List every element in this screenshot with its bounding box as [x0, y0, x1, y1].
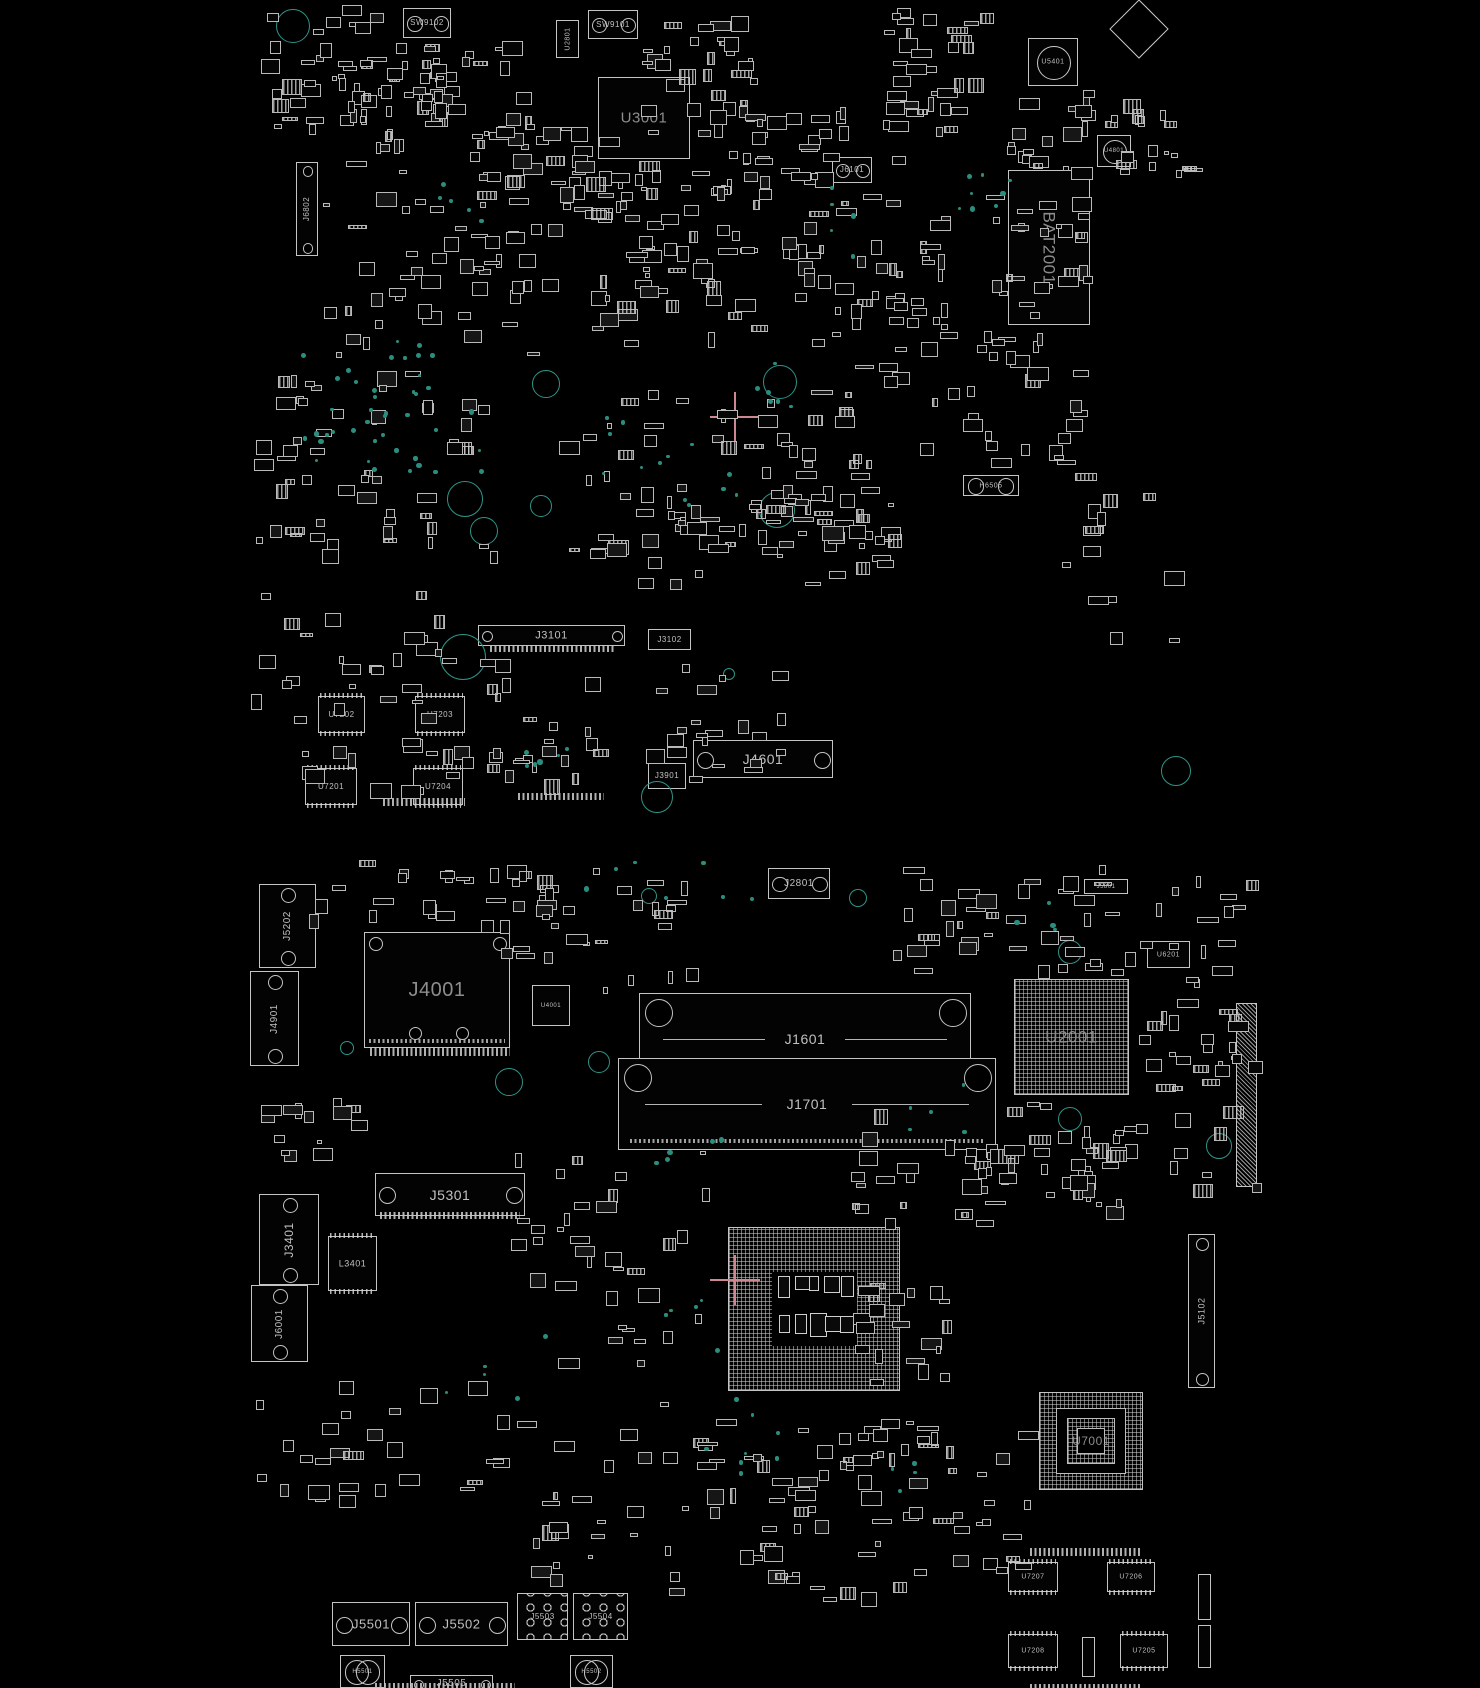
smd-component [638, 1452, 652, 1464]
smd-component [399, 170, 407, 175]
smd-component [1071, 167, 1093, 180]
smd-component [664, 243, 677, 256]
component-pinrow-8 [1030, 1684, 1140, 1688]
smd-component [270, 525, 282, 538]
smd-component [1172, 1086, 1184, 1091]
smd-component [1193, 1184, 1213, 1198]
smd-component [1007, 146, 1016, 155]
smd-component [486, 1459, 503, 1464]
smd-component [519, 871, 528, 882]
smd-component [982, 1519, 992, 1526]
smd-component [570, 1236, 590, 1245]
via-dot [962, 1083, 965, 1086]
smd-component [1170, 1161, 1179, 1175]
smd-component [717, 225, 730, 236]
smd-component [1201, 945, 1206, 959]
smd-component [954, 78, 964, 93]
smd-component [772, 671, 789, 681]
smd-component [516, 953, 535, 959]
smd-component [332, 409, 344, 419]
smd-component [607, 543, 627, 558]
smd-component [575, 1246, 595, 1256]
smd-component [464, 330, 481, 343]
smd-component [776, 749, 785, 756]
smd-component [872, 1519, 892, 1524]
via-dot [913, 1471, 916, 1474]
smd-component [320, 43, 332, 58]
smd-component [599, 137, 620, 147]
smd-component [455, 226, 467, 231]
smd-component [517, 1421, 537, 1428]
smd-component [865, 531, 873, 539]
smd-component [812, 339, 825, 347]
smd-component [857, 256, 866, 268]
smd-component [1164, 151, 1169, 155]
smd-component [310, 533, 325, 542]
smd-component [272, 89, 282, 99]
smd-component [877, 1451, 884, 1458]
smd-component [989, 352, 998, 360]
pin-hole [939, 999, 967, 1027]
smd-component [500, 920, 510, 933]
socket-pad [779, 1315, 791, 1334]
smd-component [900, 1202, 907, 1209]
smd-component [270, 41, 281, 54]
smd-component [894, 302, 907, 310]
smd-component [533, 1237, 543, 1244]
smd-component [315, 899, 328, 914]
via-dot [515, 1396, 520, 1401]
smd-component [1248, 1061, 1263, 1074]
smd-component [795, 499, 809, 506]
smd-component [605, 1252, 621, 1267]
pin-hole [281, 888, 296, 903]
smd-component [629, 257, 645, 264]
smd-component [481, 920, 495, 932]
smd-component [819, 129, 832, 140]
smd-component [261, 593, 271, 599]
smd-component [744, 172, 758, 181]
smd-component [695, 570, 703, 578]
component-label: L3401 [339, 1259, 367, 1268]
smd-component [322, 549, 339, 564]
mounting-hole [530, 495, 552, 517]
smd-component [906, 1358, 925, 1363]
component-label: J5504 [588, 1613, 612, 1621]
smd-component [1078, 213, 1090, 220]
smd-component [415, 199, 426, 205]
pin-hole [814, 752, 831, 769]
smd-component [1143, 493, 1156, 501]
component-J5301: J5301 [375, 1173, 525, 1216]
pin-hole [612, 631, 623, 642]
smd-component [590, 549, 606, 559]
via-dot [413, 456, 417, 460]
smd-component [644, 435, 657, 447]
smd-component [533, 1538, 540, 1549]
smd-component [615, 1172, 627, 1181]
via-dot [438, 196, 442, 200]
smd-component [549, 1522, 568, 1532]
smd-component [630, 1533, 639, 1537]
smd-component [506, 113, 522, 126]
smd-component [1009, 946, 1028, 951]
smd-component [1176, 170, 1182, 178]
smd-component [682, 664, 691, 674]
component-J5202: J5202 [259, 884, 316, 968]
smd-component [1212, 966, 1233, 976]
smd-component [363, 337, 370, 350]
smd-component [1017, 209, 1034, 215]
smd-component [875, 1349, 883, 1364]
smd-component [1093, 1143, 1109, 1159]
smd-component [832, 332, 841, 338]
smd-component [324, 307, 337, 319]
smd-component [484, 261, 499, 266]
component-label: J6101 [840, 166, 864, 174]
component-J6001: J6001 [251, 1285, 308, 1362]
smd-component [648, 557, 662, 569]
smd-component [760, 176, 770, 189]
smd-component [871, 240, 882, 255]
smd-component [962, 1179, 981, 1194]
smd-component [693, 263, 713, 278]
via-dot [449, 199, 453, 203]
smd-component [1070, 400, 1082, 414]
via-dot [525, 764, 529, 768]
component-label: J5202 [283, 911, 293, 941]
smd-component [384, 517, 396, 526]
smd-component [283, 1105, 303, 1114]
smd-component [1116, 1199, 1122, 1208]
smd-component [468, 1381, 488, 1396]
smd-component [375, 1484, 386, 1498]
smd-component [342, 664, 361, 674]
smd-component [277, 456, 296, 461]
smd-component [371, 666, 384, 675]
smd-component [554, 1441, 575, 1452]
smd-component [964, 21, 979, 26]
smd-component [357, 492, 376, 504]
component-label: J3401 [283, 1222, 295, 1257]
smd-component [638, 578, 654, 589]
smd-component [855, 1345, 870, 1354]
component-label: J5502 [443, 1618, 481, 1631]
smd-component [802, 448, 816, 461]
smd-component [944, 126, 958, 134]
smd-component [608, 1337, 623, 1344]
smd-component [677, 1230, 689, 1244]
smd-component [402, 61, 408, 70]
smd-component [1082, 1137, 1091, 1148]
pin-hole [369, 937, 383, 951]
via-dot [325, 433, 328, 436]
smd-component [517, 1218, 530, 1224]
smd-component [1076, 232, 1084, 239]
smd-component [294, 716, 307, 724]
smd-component [945, 1140, 955, 1156]
smd-component [603, 987, 608, 994]
pin-hole [303, 166, 314, 177]
smd-component [906, 1421, 914, 1426]
pin-hole [964, 1064, 992, 1092]
smd-component [278, 376, 289, 388]
component-J6802: J6802 [296, 162, 318, 256]
smd-component [628, 975, 634, 987]
smd-component [305, 381, 315, 387]
smd-component [759, 189, 771, 200]
via-dot [1047, 901, 1051, 905]
smd-component [977, 345, 987, 353]
smd-component [870, 1379, 883, 1386]
via-dot [426, 386, 431, 391]
pin-fringe [1122, 1631, 1166, 1636]
smd-component [914, 968, 933, 974]
smd-component [668, 268, 686, 273]
smd-component [422, 60, 431, 69]
smd-component [256, 440, 272, 455]
smd-component [1193, 1065, 1209, 1073]
smd-component [496, 127, 515, 138]
component-label: BAT2001 [1041, 211, 1058, 284]
smd-component [506, 232, 525, 243]
via-dot [479, 219, 484, 224]
smd-component [317, 1140, 323, 1144]
smd-component [906, 28, 912, 39]
smd-component [877, 560, 895, 568]
smd-component [593, 868, 599, 874]
smd-component [684, 205, 699, 216]
smd-component [301, 60, 315, 64]
smd-component [769, 1498, 785, 1503]
pin-hole [268, 975, 283, 990]
smd-component [924, 940, 940, 946]
smd-component [856, 562, 869, 574]
smd-component [379, 385, 387, 392]
smd-component [819, 1470, 829, 1481]
smd-component [556, 1169, 566, 1178]
via-dot [1014, 920, 1019, 925]
smd-component [811, 494, 826, 502]
smd-component [1071, 1159, 1085, 1171]
smd-component [753, 1454, 762, 1463]
via-dot [750, 897, 754, 901]
smd-component [953, 1512, 963, 1519]
smd-component [616, 201, 622, 213]
smd-component [361, 475, 370, 483]
smd-component [446, 772, 459, 780]
smd-component [1064, 268, 1080, 277]
smd-component [1066, 419, 1082, 431]
smd-component [648, 390, 660, 400]
smd-component [369, 910, 377, 923]
smd-component [302, 475, 312, 485]
smd-component [1074, 895, 1095, 905]
smd-component [355, 22, 371, 34]
smd-component [420, 513, 431, 520]
smd-component [487, 172, 500, 181]
smd-component [501, 948, 513, 959]
smd-component [670, 579, 683, 590]
smd-component [664, 22, 682, 29]
smd-component [341, 1411, 351, 1419]
smd-component [402, 738, 421, 747]
smd-component [1085, 526, 1104, 534]
smd-component [618, 450, 634, 460]
smd-component [798, 1428, 809, 1433]
smd-component [680, 517, 686, 522]
via-dot [537, 759, 542, 764]
smd-component [641, 187, 648, 191]
smd-component [856, 1322, 875, 1334]
smd-component [493, 748, 502, 759]
smd-component [1220, 894, 1237, 900]
smd-component [992, 339, 1005, 346]
pin-fringe [320, 693, 363, 698]
via-dot [405, 413, 409, 417]
smd-component [940, 332, 957, 339]
via-dot [483, 1373, 486, 1376]
via-dot [789, 405, 793, 409]
pin-fringe [415, 765, 461, 770]
smd-component [569, 548, 580, 552]
via-dot [1000, 191, 1005, 196]
smd-component [743, 153, 751, 163]
smd-component [425, 121, 443, 127]
component-label: J6802 [303, 197, 311, 221]
smd-component [322, 1423, 339, 1435]
component-label: J1701 [787, 1097, 828, 1111]
smd-component [1229, 1042, 1236, 1053]
smd-component [524, 280, 532, 291]
smd-component [932, 398, 939, 407]
smd-component [670, 1572, 680, 1583]
smd-component [1029, 1135, 1051, 1145]
smd-component [1033, 163, 1043, 169]
smd-component [718, 248, 738, 254]
smd-component [1169, 638, 1180, 644]
smd-component [710, 110, 728, 125]
smd-component [1171, 153, 1177, 158]
smd-component [363, 93, 370, 102]
component-J5504: J5504 [573, 1593, 628, 1640]
via-dot [373, 439, 377, 443]
smd-component [332, 76, 337, 81]
smd-component [756, 509, 766, 519]
smd-component [677, 484, 688, 492]
via-dot [744, 1452, 747, 1455]
component-J3102: J3102 [648, 629, 691, 650]
smd-component [814, 511, 833, 516]
smd-component [912, 308, 926, 316]
via-dot [412, 390, 415, 393]
via-dot [365, 420, 369, 424]
smd-component [739, 524, 746, 537]
smd-component [1007, 1107, 1024, 1118]
smd-component [1215, 1065, 1229, 1076]
via-dot [416, 463, 421, 468]
smd-component [1058, 1131, 1072, 1144]
smd-component [339, 656, 345, 664]
smd-component [771, 490, 784, 499]
smd-component [1103, 494, 1118, 508]
component-pinrow-5 [380, 1212, 520, 1219]
via-dot [700, 1299, 703, 1302]
smd-component [728, 312, 742, 320]
via-dot [851, 254, 856, 259]
via-dot [389, 355, 394, 360]
smd-component [261, 59, 280, 74]
smd-component [1015, 1563, 1032, 1570]
smd-component [572, 1496, 592, 1503]
component-label: J1601 [785, 1032, 826, 1046]
smd-component [530, 1273, 546, 1288]
smd-component [339, 78, 346, 91]
smd-component [851, 1172, 864, 1182]
smd-component [460, 1487, 475, 1492]
smd-component [617, 301, 636, 313]
via-dot [417, 343, 422, 348]
via-dot [478, 449, 481, 452]
smd-component [892, 156, 907, 165]
smd-component [946, 921, 954, 937]
smd-component [377, 371, 397, 387]
smd-component [772, 1478, 793, 1486]
key-slot [663, 1039, 765, 1040]
smd-component [634, 1339, 646, 1344]
smd-component [889, 317, 904, 326]
smd-component [428, 914, 436, 919]
via-dot [751, 1413, 754, 1416]
smd-component [689, 776, 703, 783]
smd-component [542, 746, 556, 757]
pin-hole [283, 1268, 298, 1283]
smd-component [418, 304, 432, 319]
mounting-hole [588, 1051, 610, 1073]
smd-component [633, 900, 644, 911]
smd-component [1062, 562, 1071, 567]
smd-component [561, 755, 569, 767]
pin-hole [482, 631, 493, 642]
via-dot [441, 182, 446, 187]
smd-component [1099, 865, 1106, 875]
via-dot [666, 455, 670, 459]
smd-component [917, 109, 929, 114]
smd-component [300, 633, 313, 637]
smd-component [1084, 913, 1091, 927]
smd-component [495, 693, 501, 702]
smd-component [967, 386, 975, 398]
smd-component [706, 295, 722, 306]
smd-component [348, 101, 355, 113]
component-J5503: J5503 [517, 1593, 568, 1640]
smd-component [794, 1507, 809, 1517]
component-U4001: U4001 [532, 985, 570, 1026]
smd-component [400, 275, 415, 280]
smd-component [996, 1453, 1010, 1465]
smd-component [811, 173, 818, 179]
smd-component [655, 59, 672, 71]
smd-component [851, 304, 862, 319]
smd-component [1090, 959, 1101, 967]
smd-component [256, 537, 263, 544]
smd-component [360, 60, 373, 67]
smd-component [1148, 145, 1158, 157]
pin-hole [1196, 1373, 1209, 1386]
smd-component [1065, 947, 1084, 957]
via-dot [416, 353, 421, 358]
smd-component [764, 1546, 783, 1562]
